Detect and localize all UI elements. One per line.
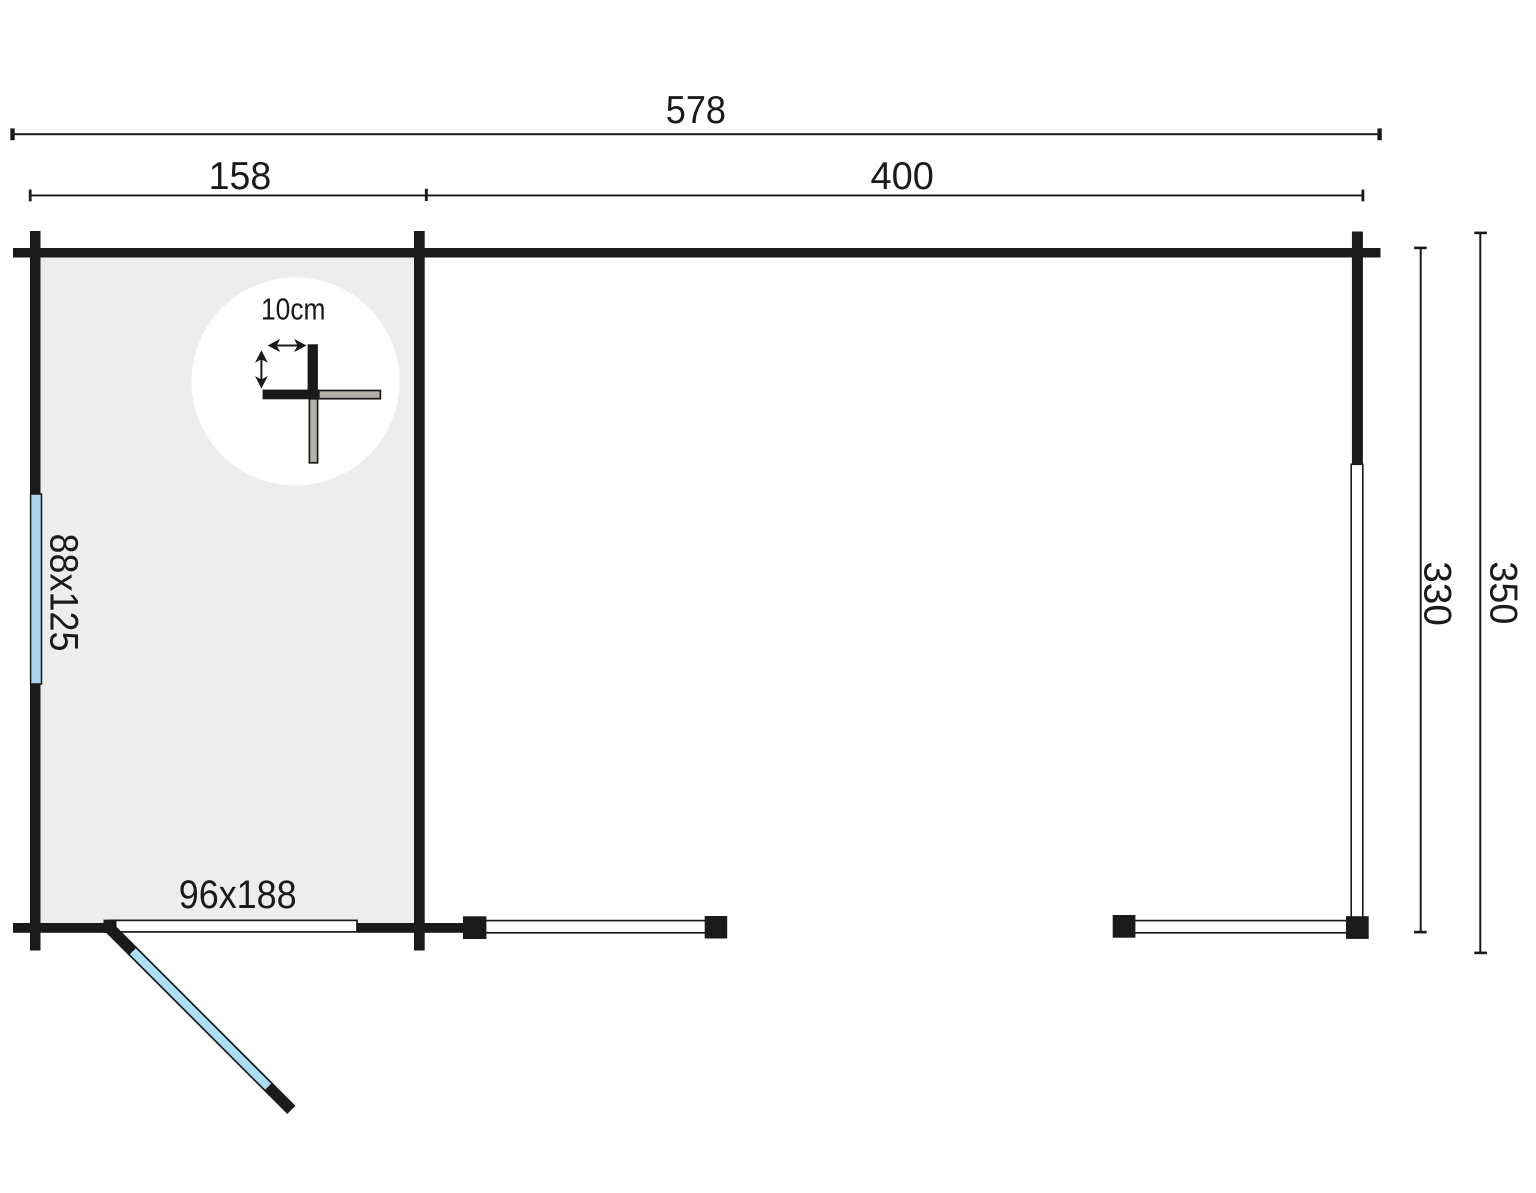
svg-text:10cm: 10cm bbox=[261, 291, 326, 326]
svg-text:350: 350 bbox=[1481, 561, 1524, 624]
svg-text:88x125: 88x125 bbox=[42, 534, 86, 652]
svg-text:158: 158 bbox=[209, 155, 272, 198]
svg-text:400: 400 bbox=[871, 155, 934, 198]
svg-text:330: 330 bbox=[1415, 561, 1458, 626]
svg-text:578: 578 bbox=[666, 89, 726, 132]
svg-text:96x188: 96x188 bbox=[179, 873, 297, 917]
